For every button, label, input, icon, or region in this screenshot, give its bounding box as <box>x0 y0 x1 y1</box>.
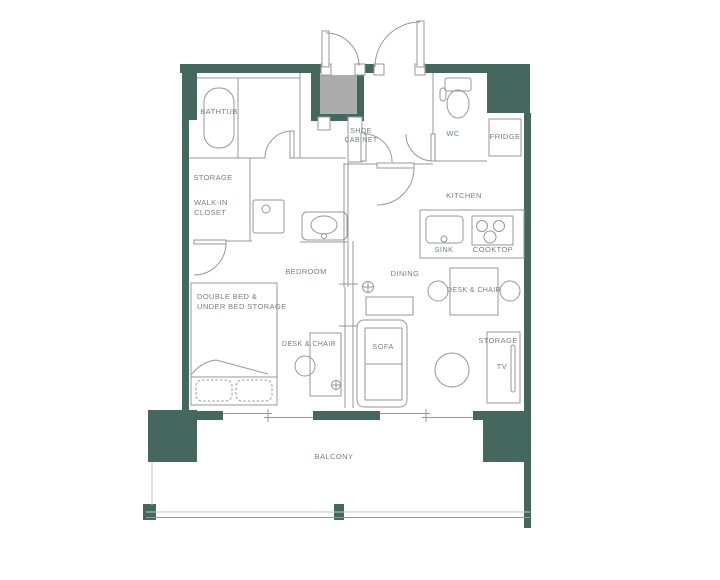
wc-door <box>406 134 435 161</box>
label-sofa: SOFA <box>372 342 394 352</box>
sink-icon <box>426 216 463 243</box>
utility-door <box>322 31 359 67</box>
closet-door <box>194 240 226 275</box>
label-bathtub: BATHTUB <box>200 107 237 117</box>
label-dining: DINING <box>391 269 420 279</box>
doors <box>194 21 435 275</box>
side-table <box>366 297 413 315</box>
chair-icon <box>428 281 448 301</box>
floor-plan-drawing <box>0 0 720 580</box>
washing-machine-icon <box>253 200 284 233</box>
round-table-icon <box>435 353 469 387</box>
label-storage-closet: STORAGE <box>193 173 232 183</box>
toilet-icon <box>440 78 471 118</box>
bathtub-icon <box>204 88 234 148</box>
sofa-icon <box>357 320 407 407</box>
label-shoe-cabinet: SHOE CABINET <box>344 127 377 145</box>
label-sink: SINK <box>434 245 453 255</box>
balcony-column-right <box>483 413 528 462</box>
label-bedroom-desk-chair: DESK & CHAIR <box>282 340 336 350</box>
sliding-window <box>223 409 313 422</box>
label-walk-in-closet: WALK-IN CLOSET <box>194 198 228 218</box>
entrance-door <box>375 21 424 67</box>
label-kitchen: KITCHEN <box>446 191 482 201</box>
floor-plan: BATHTUB STORAGE WALK-IN CLOSET SHOE CABI… <box>0 0 720 580</box>
label-tv: TV <box>497 362 507 372</box>
label-bedroom: BEDROOM <box>285 267 327 277</box>
label-balcony: BALCONY <box>315 452 354 462</box>
tv-icon <box>511 345 515 392</box>
blanket-fold <box>191 360 268 375</box>
sliding-window <box>380 409 473 422</box>
corner-column <box>487 64 530 113</box>
chair-icon <box>500 281 520 301</box>
pillow-icon <box>196 380 232 401</box>
washbasin-icon <box>302 212 347 240</box>
cooktop-icon <box>472 216 513 245</box>
meter-box-niche <box>320 75 357 115</box>
label-fridge: FRIDGE <box>490 132 521 142</box>
label-storage-living: STORAGE <box>478 336 517 346</box>
label-wc: WC <box>446 129 459 139</box>
pillow-icon <box>236 380 272 401</box>
floor-outlet-icon <box>363 282 374 293</box>
living-door <box>377 163 414 205</box>
label-dining-desk-chair: DESK & CHAIR <box>447 286 501 296</box>
label-cooktop: COOKTOP <box>473 245 513 255</box>
bathroom-door <box>265 131 294 158</box>
chair-icon <box>295 356 315 376</box>
floor-outlet-icon <box>332 381 341 390</box>
label-double-bed: DOUBLE BED & UNDER BED STORAGE <box>197 292 287 312</box>
